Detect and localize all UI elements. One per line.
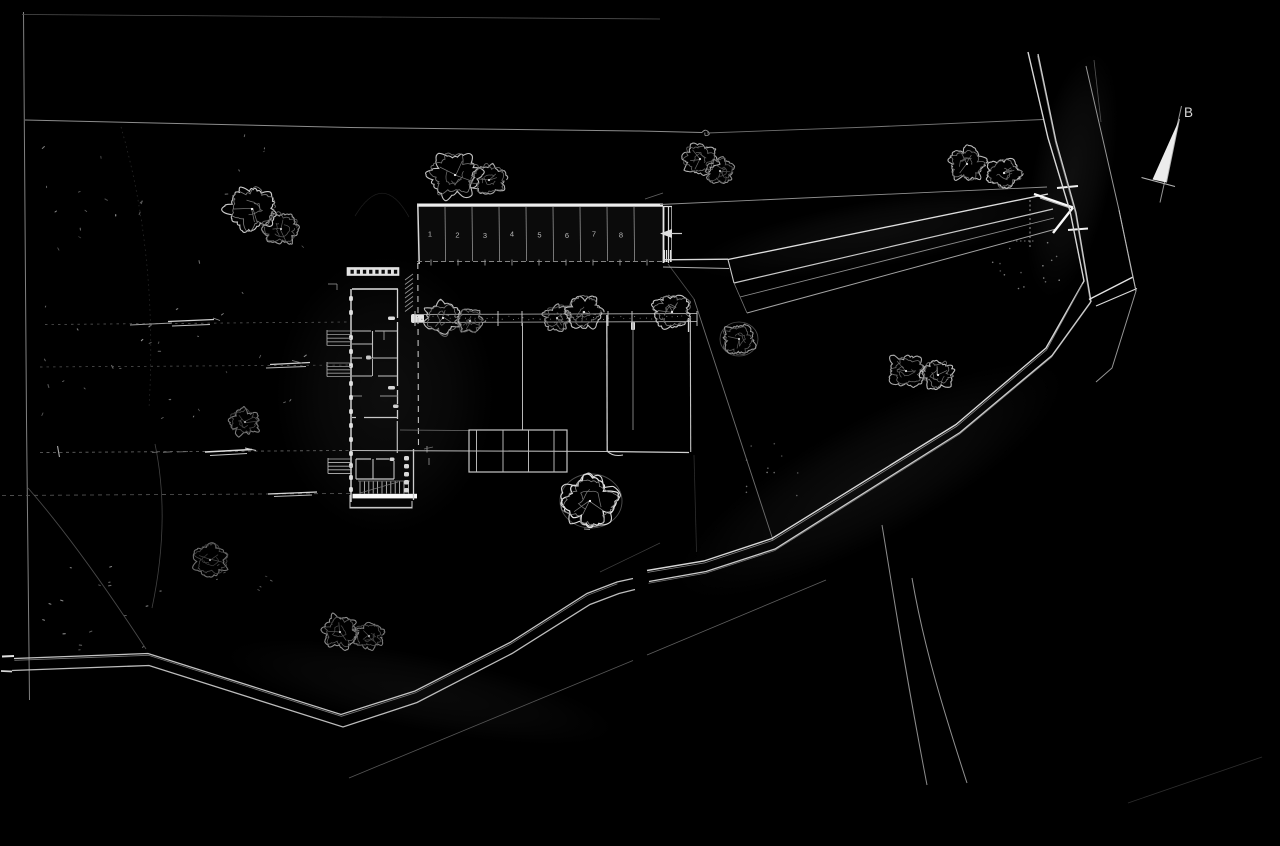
- svg-text:B: B: [1184, 105, 1193, 120]
- svg-text:1: 1: [428, 230, 432, 239]
- svg-text:3: 3: [483, 231, 487, 240]
- svg-text:5: 5: [537, 230, 541, 239]
- svg-text:4: 4: [510, 230, 514, 239]
- svg-text:6: 6: [565, 231, 569, 240]
- svg-text:2: 2: [455, 230, 459, 239]
- svg-text:7: 7: [592, 230, 596, 239]
- svg-text:8: 8: [619, 230, 623, 239]
